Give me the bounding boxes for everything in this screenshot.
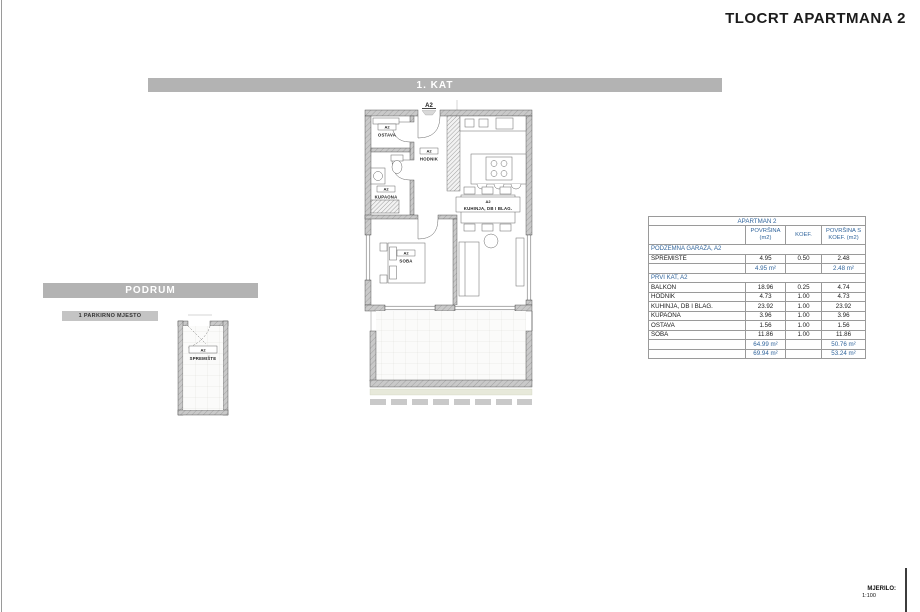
sink-unit xyxy=(465,119,474,127)
svg-text:KUPAONA: KUPAONA xyxy=(375,195,398,200)
chair xyxy=(464,187,475,194)
storage-floor xyxy=(183,326,223,410)
section-bar-first-floor: 1. KAT xyxy=(148,78,722,92)
subtotal-row: 4.95 m² 2.48 m² xyxy=(649,264,866,274)
sheet-border-right xyxy=(905,568,907,612)
burner xyxy=(491,161,497,167)
table-row: SPREMIŠTE 4.95 0.50 2.48 xyxy=(649,254,866,264)
table-header-row: POVRŠINA (m2) KOEF. POVRŠINA S KOEF. (m2… xyxy=(649,226,866,245)
chair xyxy=(482,224,493,231)
pillow xyxy=(390,247,397,260)
svg-text:KUHINJA, DB I BLAG.: KUHINJA, DB I BLAG. xyxy=(464,206,512,211)
table-row: KUHINJA, DB I BLAG. 23.92 1.00 23.92 xyxy=(649,302,866,312)
svg-text:A2: A2 xyxy=(384,125,390,130)
apartment-floor-plan: A2 xyxy=(358,100,542,420)
area-table: APARTMAN 2 POVRŠINA (m2) KOEF. POVRŠINA … xyxy=(648,216,866,359)
svg-text:A2: A2 xyxy=(200,348,206,353)
svg-text:A2: A2 xyxy=(383,187,389,192)
col-header: POVRŠINA (m2) xyxy=(746,226,786,245)
sofa xyxy=(459,242,479,296)
table-title: APARTMAN 2 xyxy=(649,217,866,226)
toilet-icon xyxy=(392,161,402,174)
label-kuhinja: A2 KUHINJA, DB I BLAG. xyxy=(456,197,520,212)
subtotal-row: 64.99 m² 50.76 m² xyxy=(649,340,866,350)
balcony-parapet-left xyxy=(370,331,376,381)
floor-plan-sheet: TLOCRT APARTMANA 2 1. KAT PODRUM 1 PARKI… xyxy=(0,0,920,612)
svg-text:A2: A2 xyxy=(485,199,491,204)
burner xyxy=(501,171,507,177)
label-hodnik: A2 HODNIK xyxy=(420,148,439,162)
table-row: SOBA 11.86 1.00 11.86 xyxy=(649,330,866,340)
svg-text:A2: A2 xyxy=(403,251,409,256)
chair xyxy=(464,224,475,231)
sink-icon xyxy=(374,172,383,181)
parking-label: 1 PARKIRNO MJESTO xyxy=(62,311,158,321)
table-row: BALKON 18.96 0.25 4.74 xyxy=(649,283,866,293)
svg-text:SOBA: SOBA xyxy=(399,259,412,264)
hob-unit xyxy=(479,119,488,127)
col-header xyxy=(649,226,746,245)
burner xyxy=(501,161,507,167)
planting-strip xyxy=(370,389,532,395)
chair xyxy=(500,187,511,194)
label-kupaona: A2 KUPAONA xyxy=(375,186,398,200)
armchair xyxy=(484,234,498,248)
svg-text:A2: A2 xyxy=(426,149,432,154)
bar-stool xyxy=(511,184,521,189)
cooktop xyxy=(486,157,512,180)
door-swings xyxy=(392,116,440,239)
burner xyxy=(491,171,497,177)
toilet-tank xyxy=(391,155,403,161)
scale-block: MJERILO: 1:100 xyxy=(842,586,896,599)
chair xyxy=(500,224,511,231)
balcony-parapet-bottom xyxy=(370,380,532,387)
shower-tray xyxy=(371,200,399,213)
soba-door-arc xyxy=(418,219,438,239)
table-row: OSTAVA 1.56 1.00 1.56 xyxy=(649,321,866,331)
installation-shaft xyxy=(447,116,460,191)
nightstand xyxy=(380,243,387,251)
section-bar-basement: PODRUM xyxy=(43,283,258,298)
total-row: 69.94 m² 53.24 m² xyxy=(649,349,866,359)
section-header-row: PRVI KAT, A2 xyxy=(649,273,866,283)
first-floor-label: 1. KAT xyxy=(417,80,454,91)
chair xyxy=(482,187,493,194)
page-title: TLOCRT APARTMANA 2 xyxy=(520,10,906,27)
storage-floor-plan: A2 SPREMIŠTE xyxy=(172,310,234,432)
tv-bench xyxy=(516,238,524,286)
table-row: KUPAONA 3.96 1.00 3.96 xyxy=(649,311,866,321)
section-header-row: PODZEMNA GARAŽA, A2 xyxy=(649,245,866,255)
balcony xyxy=(370,311,532,402)
entrance-threshold xyxy=(422,111,436,116)
nightstand xyxy=(380,275,387,283)
table-title-row: APARTMAN 2 xyxy=(649,217,866,226)
entrance-door-arc xyxy=(418,116,440,138)
bathroom-fixtures xyxy=(371,155,403,213)
balcony-parapet-right xyxy=(526,331,532,381)
pillow xyxy=(390,266,397,279)
basement-label: PODRUM xyxy=(125,285,175,296)
col-header: POVRŠINA S KOEF. (m2) xyxy=(822,226,866,245)
appliance xyxy=(496,118,513,129)
col-header: KOEF. xyxy=(786,226,822,245)
scale-value: 1:100 xyxy=(842,593,896,599)
svg-text:OSTAVA: OSTAVA xyxy=(378,133,396,138)
scale-label: MJERILO: xyxy=(842,586,896,592)
svg-text:SPREMIŠTE: SPREMIŠTE xyxy=(190,356,217,361)
balcony-floor xyxy=(376,311,526,380)
svg-text:HODNIK: HODNIK xyxy=(420,157,439,162)
ostava-shelf xyxy=(373,118,399,124)
sheet-border-left xyxy=(1,0,2,612)
table-row: HODNIK 4.73 1.00 4.73 xyxy=(649,292,866,302)
